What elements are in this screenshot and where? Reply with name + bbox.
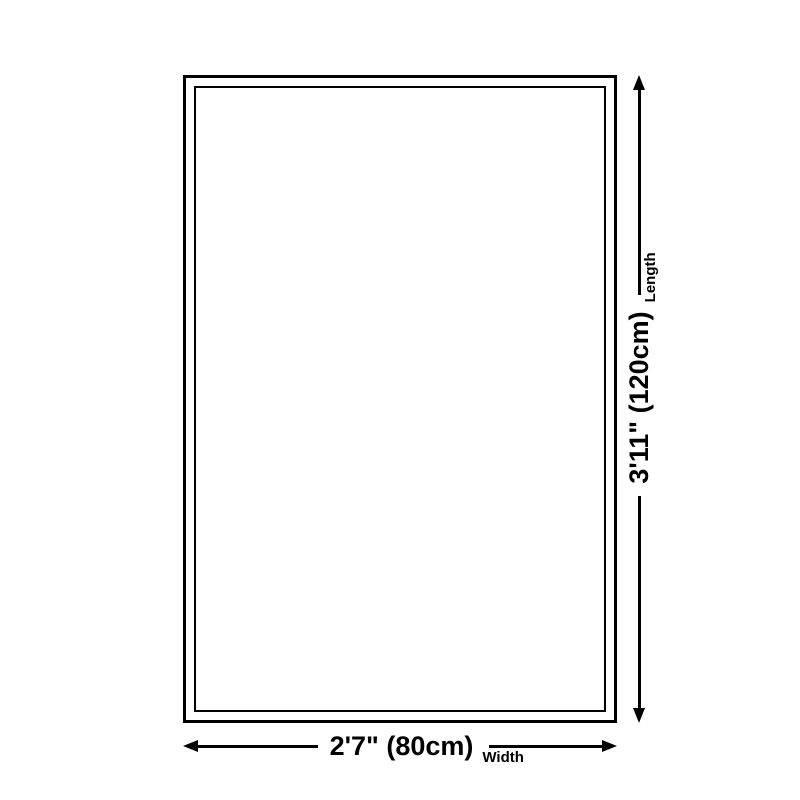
width-dimension-line-right: Width [482, 728, 602, 764]
length-value: 3'11" (120cm) [626, 311, 653, 483]
rug-inner-border [194, 86, 606, 712]
arrowhead-left-icon [183, 740, 198, 752]
length-label: Length [643, 252, 658, 302]
length-dimension-line-bottom [638, 496, 641, 708]
arrowhead-down-icon [633, 708, 645, 723]
width-label: Width [482, 750, 524, 765]
width-value: 2'7" (80cm) [330, 733, 474, 760]
length-dimension-line-top-bar [638, 90, 641, 295]
length-dimension: 3'11" (120cm) Length [621, 75, 657, 723]
size-diagram: 2'7" (80cm) Width 3'11" (120cm) Length [0, 0, 800, 800]
width-dimension-line-right-bar [489, 745, 602, 748]
width-dimension: 2'7" (80cm) Width [183, 728, 617, 764]
rug-outer-border [183, 75, 617, 723]
length-dimension-line-top: Length [621, 90, 657, 302]
arrowhead-right-icon [602, 740, 617, 752]
arrowhead-up-icon [633, 75, 645, 90]
width-dimension-line-left [198, 745, 318, 748]
